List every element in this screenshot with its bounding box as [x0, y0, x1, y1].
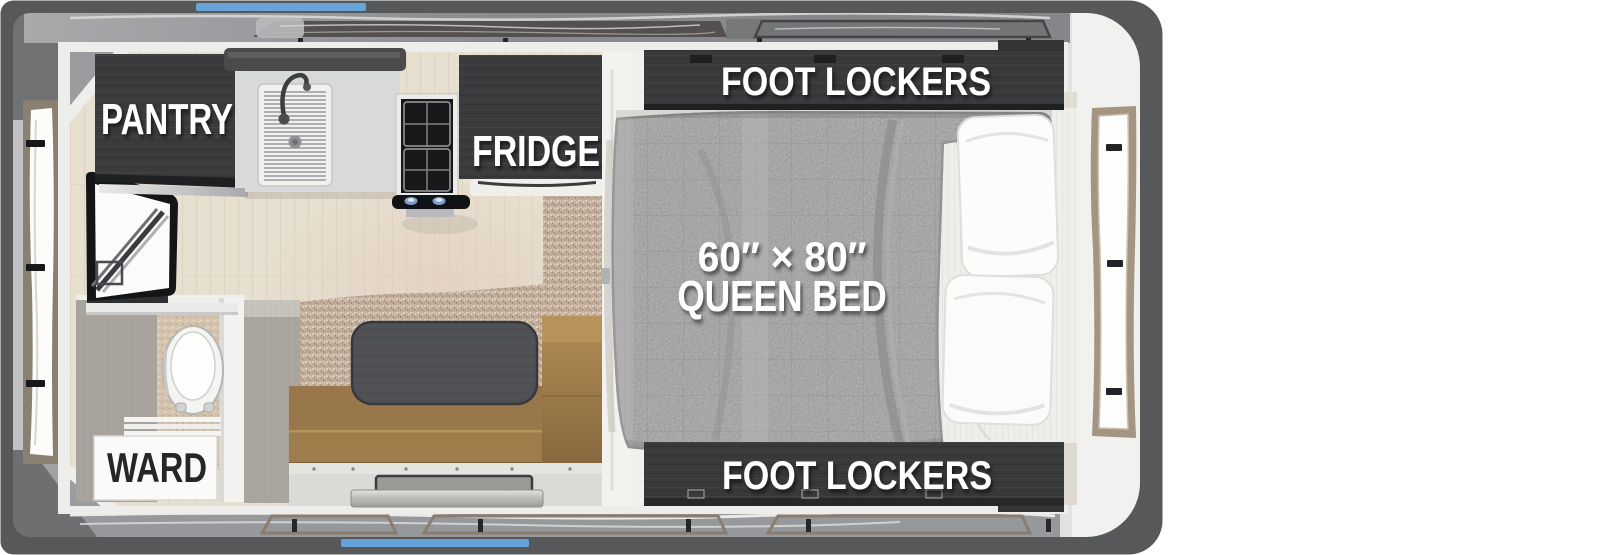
svg-text:PANTRY: PANTRY: [101, 96, 233, 145]
svg-text:QUEEN BED: QUEEN BED: [677, 272, 886, 321]
svg-text:FOOT LOCKERS: FOOT LOCKERS: [722, 452, 992, 497]
svg-text:FOOT LOCKERS: FOOT LOCKERS: [721, 58, 991, 103]
svg-text:WARD: WARD: [107, 444, 207, 491]
svg-text:FRIDGE: FRIDGE: [472, 127, 600, 176]
